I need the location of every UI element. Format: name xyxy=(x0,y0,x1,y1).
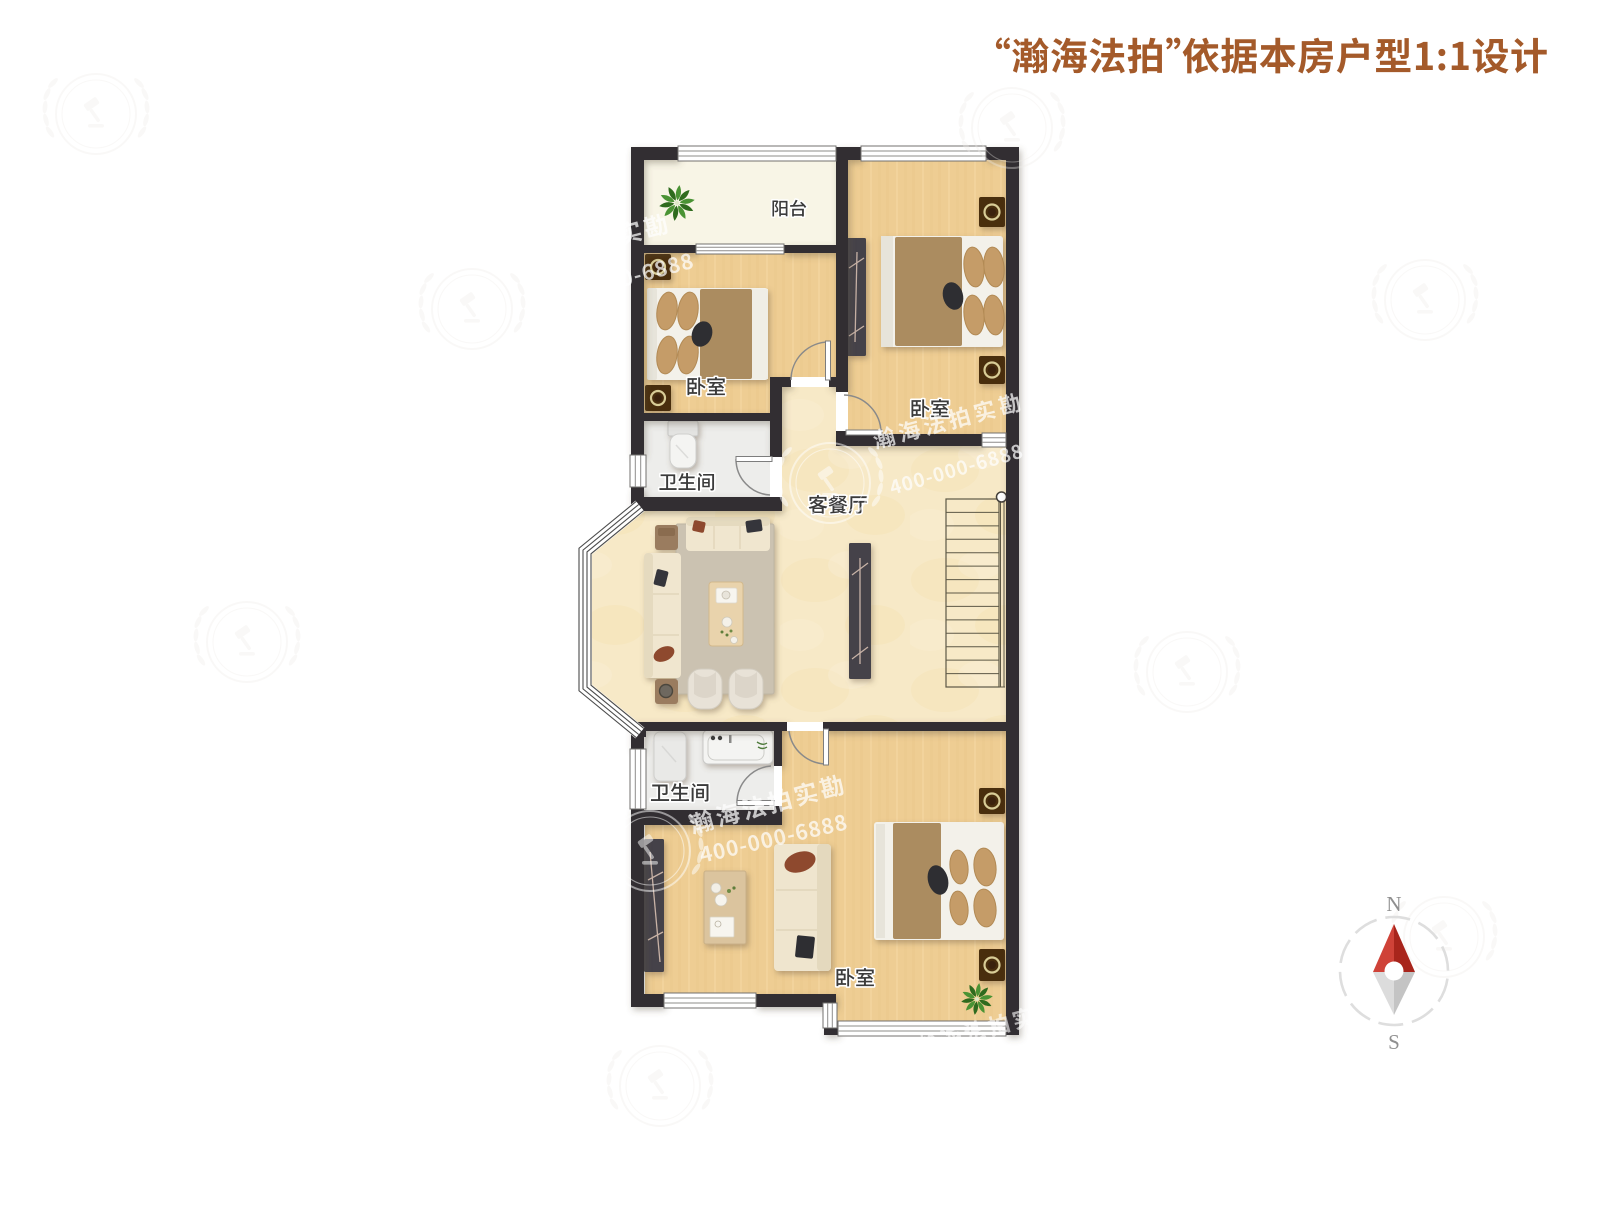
svg-text:S: S xyxy=(1388,1030,1400,1054)
svg-text:N: N xyxy=(1386,892,1401,916)
